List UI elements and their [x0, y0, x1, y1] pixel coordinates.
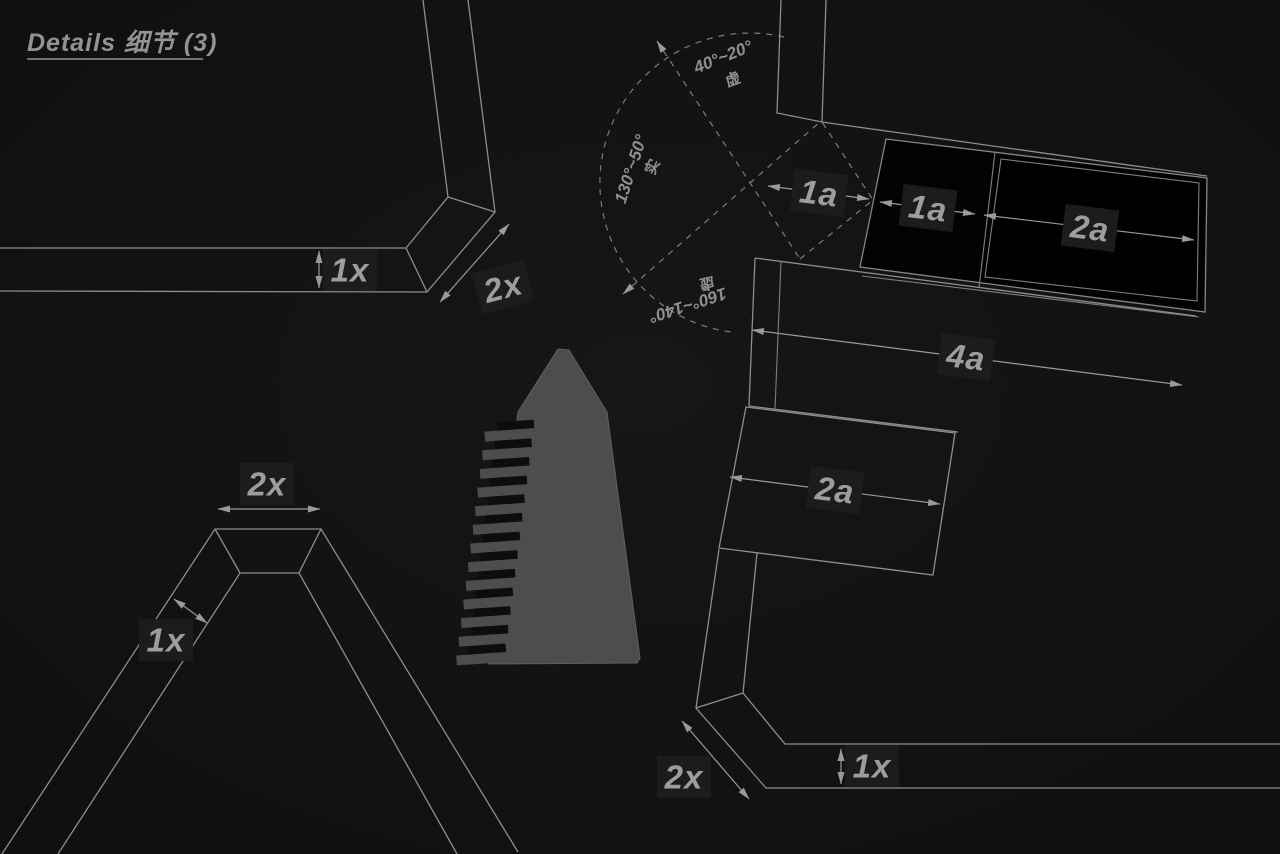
svg-text:2x: 2x [247, 466, 287, 503]
svg-text:2a: 2a [813, 469, 857, 511]
dim-label-1a-panel: 1a [899, 184, 958, 232]
dim-label-4a: 4a [937, 333, 996, 381]
svg-text:1a: 1a [798, 172, 841, 213]
svg-text:2a: 2a [1068, 207, 1112, 249]
dim-label-2a-panel: 2a [1061, 204, 1120, 252]
page-title: Details 细节 (3) [27, 29, 217, 59]
background [0, 0, 1280, 854]
dim-label-2x-a-frame: 2x [240, 463, 294, 505]
svg-text:1a: 1a [907, 187, 950, 228]
svg-text:1x: 1x [853, 748, 892, 785]
svg-text:2x: 2x [664, 759, 704, 796]
svg-text:1x: 1x [147, 622, 186, 659]
dim-label-1x-a-frame: 1x [139, 619, 193, 661]
dim-label-1a-gap: 1a [790, 169, 849, 217]
svg-text:1x: 1x [331, 252, 370, 289]
svg-text:4a: 4a [944, 336, 988, 378]
title-text: Details 细节 (3) [27, 29, 217, 57]
dim-label-1x-top-left: 1x [323, 249, 377, 291]
dim-label-1x-bottom: 1x [845, 745, 899, 787]
dim-label-2a-block: 2a [806, 466, 865, 514]
detail-diagram-canvas: Details 细节 (3) [0, 0, 1280, 854]
dim-label-2x-bottom: 2x [657, 756, 711, 798]
